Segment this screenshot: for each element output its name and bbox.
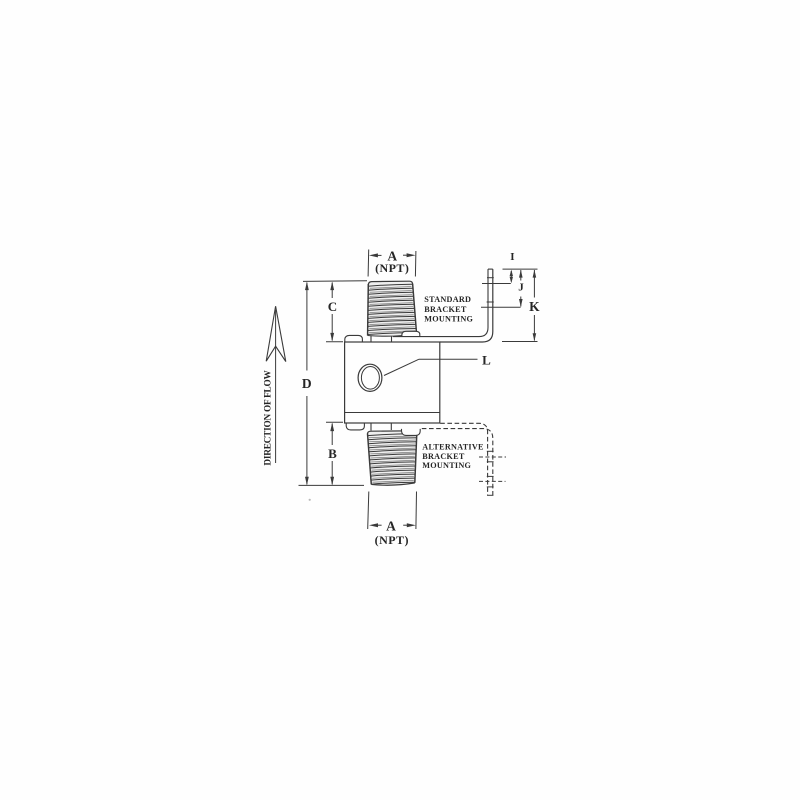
svg-text:(NPT): (NPT) <box>375 261 409 275</box>
svg-text:A: A <box>386 518 396 533</box>
svg-text:BRACKET: BRACKET <box>424 305 467 314</box>
svg-text:BRACKET: BRACKET <box>422 452 465 461</box>
svg-text:C: C <box>328 299 337 314</box>
svg-text:J: J <box>518 281 524 293</box>
svg-text:(NPT): (NPT) <box>375 533 409 547</box>
svg-text:MOUNTING: MOUNTING <box>422 461 471 470</box>
svg-text:ALTERNATIVE: ALTERNATIVE <box>422 443 484 452</box>
svg-text:DIRECTION OF FLOW: DIRECTION OF FLOW <box>264 370 274 466</box>
svg-text:I: I <box>510 251 514 263</box>
svg-text:MOUNTING: MOUNTING <box>424 315 473 324</box>
svg-text:STANDARD: STANDARD <box>424 295 471 304</box>
svg-text:D: D <box>302 376 312 391</box>
svg-text:B: B <box>328 446 337 461</box>
svg-text:L: L <box>482 353 491 368</box>
svg-text:K: K <box>529 299 540 314</box>
